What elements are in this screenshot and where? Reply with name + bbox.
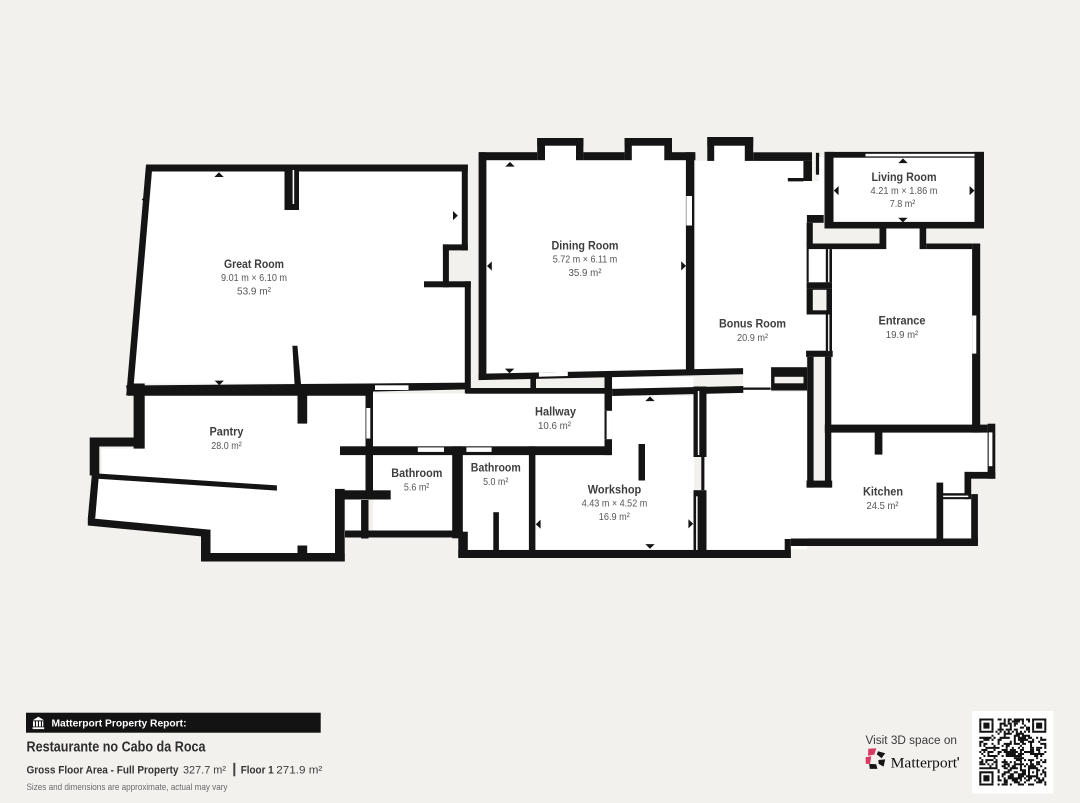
svg-text:271.9 m²: 271.9 m² xyxy=(276,765,322,777)
svg-text:4.21 m × 1.86 m: 4.21 m × 1.86 m xyxy=(871,185,938,197)
svg-text:Matterport Property Report:: Matterport Property Report: xyxy=(52,719,187,730)
svg-text:Bathroom: Bathroom xyxy=(391,466,442,480)
svg-text:53.9 m²: 53.9 m² xyxy=(237,286,271,298)
svg-text:28.0 m²: 28.0 m² xyxy=(211,440,242,452)
svg-text:Sizes and dimensions are appro: Sizes and dimensions are approximate, ac… xyxy=(27,782,228,792)
svg-text:Restaurante no Cabo da Roca: Restaurante no Cabo da Roca xyxy=(27,740,207,756)
svg-text:24.5 m²: 24.5 m² xyxy=(867,500,899,512)
svg-text:5.0 m²: 5.0 m² xyxy=(483,476,509,488)
svg-text:Hallway: Hallway xyxy=(535,405,576,419)
svg-text:19.9 m²: 19.9 m² xyxy=(886,329,919,341)
svg-text:35.9 m²: 35.9 m² xyxy=(569,267,602,279)
svg-text:Bonus Room: Bonus Room xyxy=(719,317,786,331)
svg-text:16.9 m²: 16.9 m² xyxy=(599,511,630,523)
svg-text:5.6 m²: 5.6 m² xyxy=(404,482,430,494)
svg-text:10.6 m²: 10.6 m² xyxy=(538,420,571,432)
svg-text:Visit 3D space on: Visit 3D space on xyxy=(866,735,958,747)
svg-text:Great Room: Great Room xyxy=(224,257,284,271)
svg-text:7.8 m²: 7.8 m² xyxy=(890,198,916,210)
svg-text:Floor 1: Floor 1 xyxy=(241,765,274,777)
svg-text:20.9 m²: 20.9 m² xyxy=(737,332,768,344)
svg-text:Matterport: Matterport xyxy=(891,754,958,771)
svg-text:Living Room: Living Room xyxy=(872,170,937,184)
svg-text:Bathroom: Bathroom xyxy=(471,461,521,475)
svg-text:4.43 m × 4.52 m: 4.43 m × 4.52 m xyxy=(582,498,648,510)
svg-text:327.7 m²: 327.7 m² xyxy=(183,765,226,777)
svg-text:Kitchen: Kitchen xyxy=(863,485,903,499)
svg-text:Gross Floor Area - Full Proper: Gross Floor Area - Full Property xyxy=(27,765,180,777)
svg-text:5.72 m × 6.11 m: 5.72 m × 6.11 m xyxy=(553,254,618,266)
svg-text:9.01 m × 6.10 m: 9.01 m × 6.10 m xyxy=(221,272,287,284)
svg-text:Dining Room: Dining Room xyxy=(552,239,619,253)
svg-text:Workshop: Workshop xyxy=(588,483,642,497)
svg-text:Entrance: Entrance xyxy=(879,314,926,328)
svg-text:Pantry: Pantry xyxy=(210,425,244,439)
